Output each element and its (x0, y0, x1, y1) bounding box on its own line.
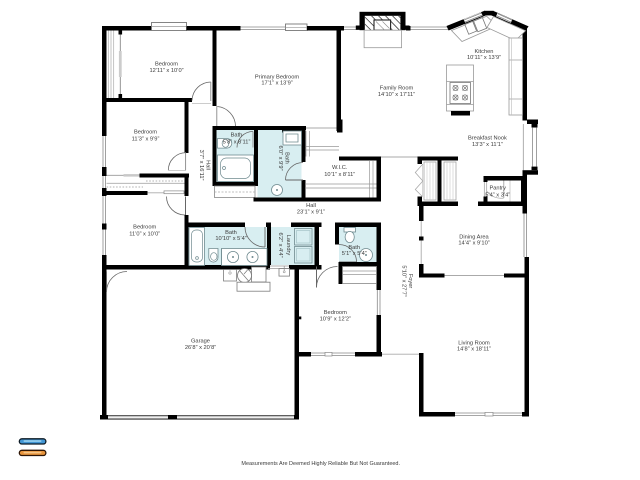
svg-text:5’8” x 8’11”: 5’8” x 8’11” (223, 140, 251, 146)
svg-text:Bath: Bath (348, 245, 360, 251)
svg-text:Bedroom: Bedroom (134, 130, 157, 136)
svg-text:14’8” x 18’11”: 14’8” x 18’11” (457, 346, 491, 352)
svg-text:Breakfast Nook: Breakfast Nook (468, 136, 507, 142)
svg-text:Bedroom: Bedroom (133, 225, 156, 231)
svg-text:Bath: Bath (284, 152, 290, 164)
svg-text:Measurements Are Deemed Highly: Measurements Are Deemed Highly Reliable … (241, 461, 400, 467)
svg-text:11’0” x 10’0”: 11’0” x 10’0” (129, 231, 160, 237)
svg-text:3’7” x 16’11”: 3’7” x 16’11” (198, 150, 204, 181)
svg-text:W.I.C.: W.I.C. (332, 165, 348, 171)
svg-text:12’11” x 10’0”: 12’11” x 10’0” (149, 68, 183, 74)
svg-text:11’3” x 9’9”: 11’3” x 9’9” (132, 136, 160, 142)
svg-text:13’3” x 11’1”: 13’3” x 11’1” (472, 142, 503, 148)
svg-text:Primary Bedroom: Primary Bedroom (255, 74, 300, 80)
svg-text:5’10” x 27’7”: 5’10” x 27’7” (401, 265, 407, 296)
svg-text:10’1” x 8’11”: 10’1” x 8’11” (324, 172, 355, 178)
svg-text:Hall: Hall (306, 203, 316, 209)
svg-text:Kitchen: Kitchen (475, 49, 494, 55)
svg-text:17’1” x 13’9”: 17’1” x 13’9” (261, 81, 292, 87)
svg-text:6’0” x 9’9”: 6’0” x 9’9” (277, 146, 283, 171)
svg-text:10’9” x 12’2”: 10’9” x 12’2” (320, 317, 351, 323)
svg-text:10’10” x 5’4”: 10’10” x 5’4” (215, 236, 246, 242)
svg-text:Hall: Hall (205, 160, 211, 170)
svg-text:23’1” x 9’1”: 23’1” x 9’1” (297, 209, 325, 215)
svg-text:14’10” x 17’11”: 14’10” x 17’11” (378, 92, 415, 98)
svg-text:Bedroom: Bedroom (155, 62, 178, 68)
svg-text:Family Room: Family Room (380, 85, 414, 91)
svg-text:Bath: Bath (231, 133, 243, 139)
svg-text:Pantry: Pantry (489, 186, 506, 192)
svg-text:6’2” x 4’4”: 6’2” x 4’4” (277, 233, 283, 258)
svg-text:Bedroom: Bedroom (324, 310, 347, 316)
svg-text:5’4” x 3’4”: 5’4” x 3’4” (485, 193, 510, 199)
svg-text:14’4” x 9’10”: 14’4” x 9’10” (458, 240, 489, 246)
svg-text:26’8” x 20’8”: 26’8” x 20’8” (185, 345, 216, 351)
svg-text:Laundry: Laundry (285, 235, 291, 256)
svg-text:Foyer: Foyer (407, 274, 413, 289)
svg-text:5’1” x 5’4”: 5’1” x 5’4” (342, 251, 367, 257)
svg-text:Garage: Garage (191, 338, 210, 344)
svg-text:10’11” x 13’9”: 10’11” x 13’9” (467, 55, 501, 61)
